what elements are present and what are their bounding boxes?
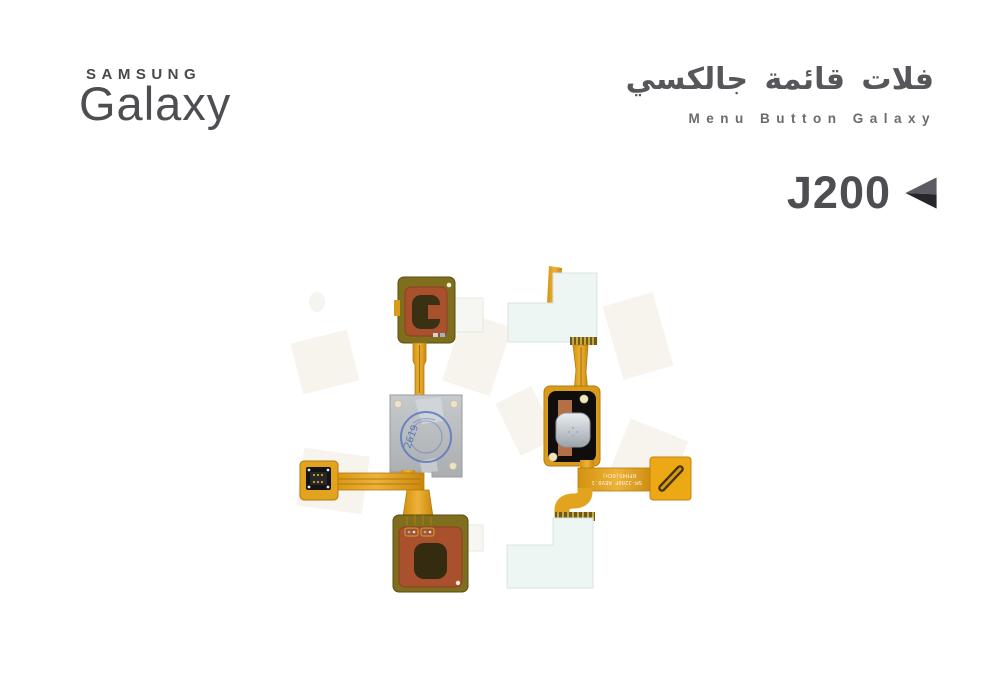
flex-cable-back-photo: 2619: [295, 265, 495, 600]
product-banner: SAMSUNG Galaxy فلات قائمة جالكسي Menu Bu…: [0, 0, 1000, 700]
menu-button-assembly: [544, 386, 600, 466]
board-connector: [300, 461, 338, 500]
flex-arm: [328, 473, 424, 490]
title-arabic: فلات قائمة جالكسي: [626, 62, 934, 97]
flex-ribbon: [403, 490, 433, 517]
model-label: J200: [787, 170, 891, 215]
galaxy-wordmark: Galaxy: [79, 76, 231, 131]
model-badge: J200: [787, 170, 938, 215]
speaker-pad-bottom: [393, 515, 468, 592]
home-button-dome: [556, 413, 590, 447]
flex-cable-front-photo: SM-J200F REV0.1 RFH4S(0Ch): [500, 262, 710, 602]
connector-tab: [650, 457, 691, 500]
button-bracket-plate: 2619: [390, 395, 462, 477]
protective-sticker-bottom: [507, 518, 593, 588]
protective-sticker-top: [508, 273, 597, 342]
speaker-pad-top: [394, 277, 455, 343]
contact-fingers-top: [570, 337, 597, 345]
ribbon-print-line1: SM-J200F REV0.1: [591, 479, 642, 485]
release-paper-blob: [309, 292, 325, 312]
ribbon-print-line2: RFH4S(0Ch): [602, 472, 636, 478]
title-english: Menu Button Galaxy: [688, 111, 936, 126]
back-triangle-icon: [904, 176, 938, 210]
speaker-mesh: [414, 543, 447, 579]
